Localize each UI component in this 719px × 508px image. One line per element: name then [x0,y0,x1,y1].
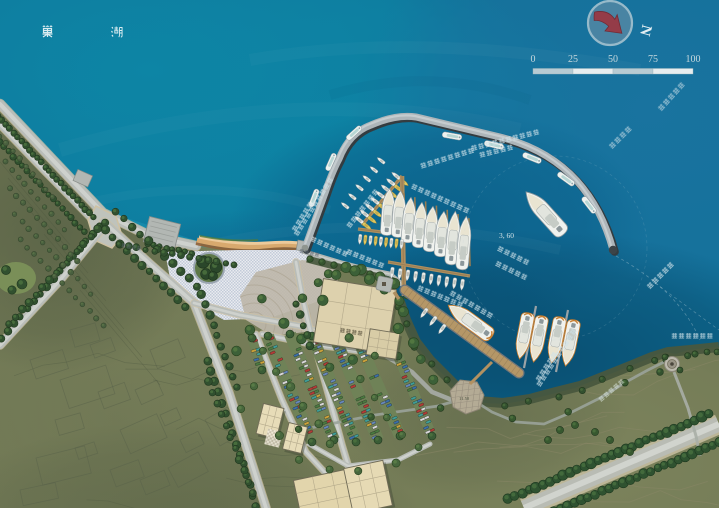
svg-text:50: 50 [608,54,618,65]
svg-text:3, 60: 3, 60 [499,231,514,240]
svg-text:100: 100 [686,54,701,65]
svg-text:0: 0 [531,54,536,65]
svg-text:75: 75 [648,54,658,65]
svg-text:11.50: 11.50 [459,396,470,401]
svg-text:25: 25 [568,54,578,65]
